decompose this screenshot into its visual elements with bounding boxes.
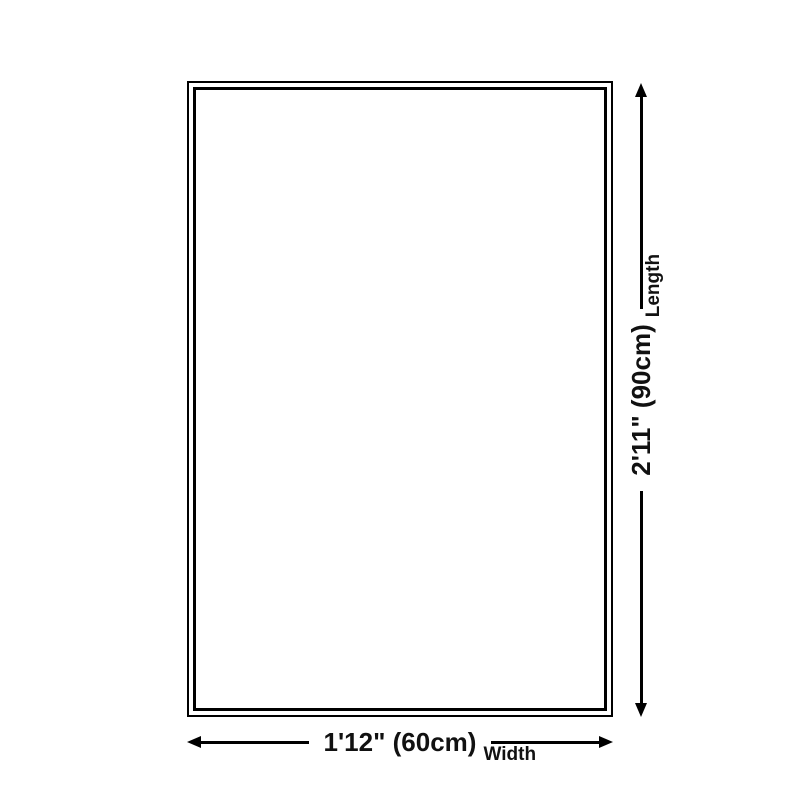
width-dimension-line-left (201, 741, 309, 744)
width-dimension-value: 1'12" (60cm) Width (309, 729, 492, 755)
arrow-left-icon (187, 736, 201, 748)
length-dimension-label: Length (644, 254, 663, 317)
dimension-diagram: 2'11" (90cm) Length 1'12" (60cm) Width (0, 0, 800, 800)
arrow-down-icon (635, 703, 647, 717)
length-dimension-line-lower (640, 491, 643, 703)
width-dimension-arrow: 1'12" (60cm) Width (187, 722, 613, 762)
width-dimension-label: Width (483, 745, 536, 764)
product-outline-inner (193, 87, 607, 711)
arrow-right-icon (599, 736, 613, 748)
arrow-up-icon (635, 83, 647, 97)
product-outline (187, 81, 613, 717)
length-value-text: 2'11" (90cm) (626, 324, 656, 476)
length-dimension-arrow: 2'11" (90cm) Length (621, 83, 661, 717)
width-value-text: 1'12" (60cm) (324, 727, 477, 757)
length-dimension-value: 2'11" (90cm) Length (628, 309, 654, 491)
